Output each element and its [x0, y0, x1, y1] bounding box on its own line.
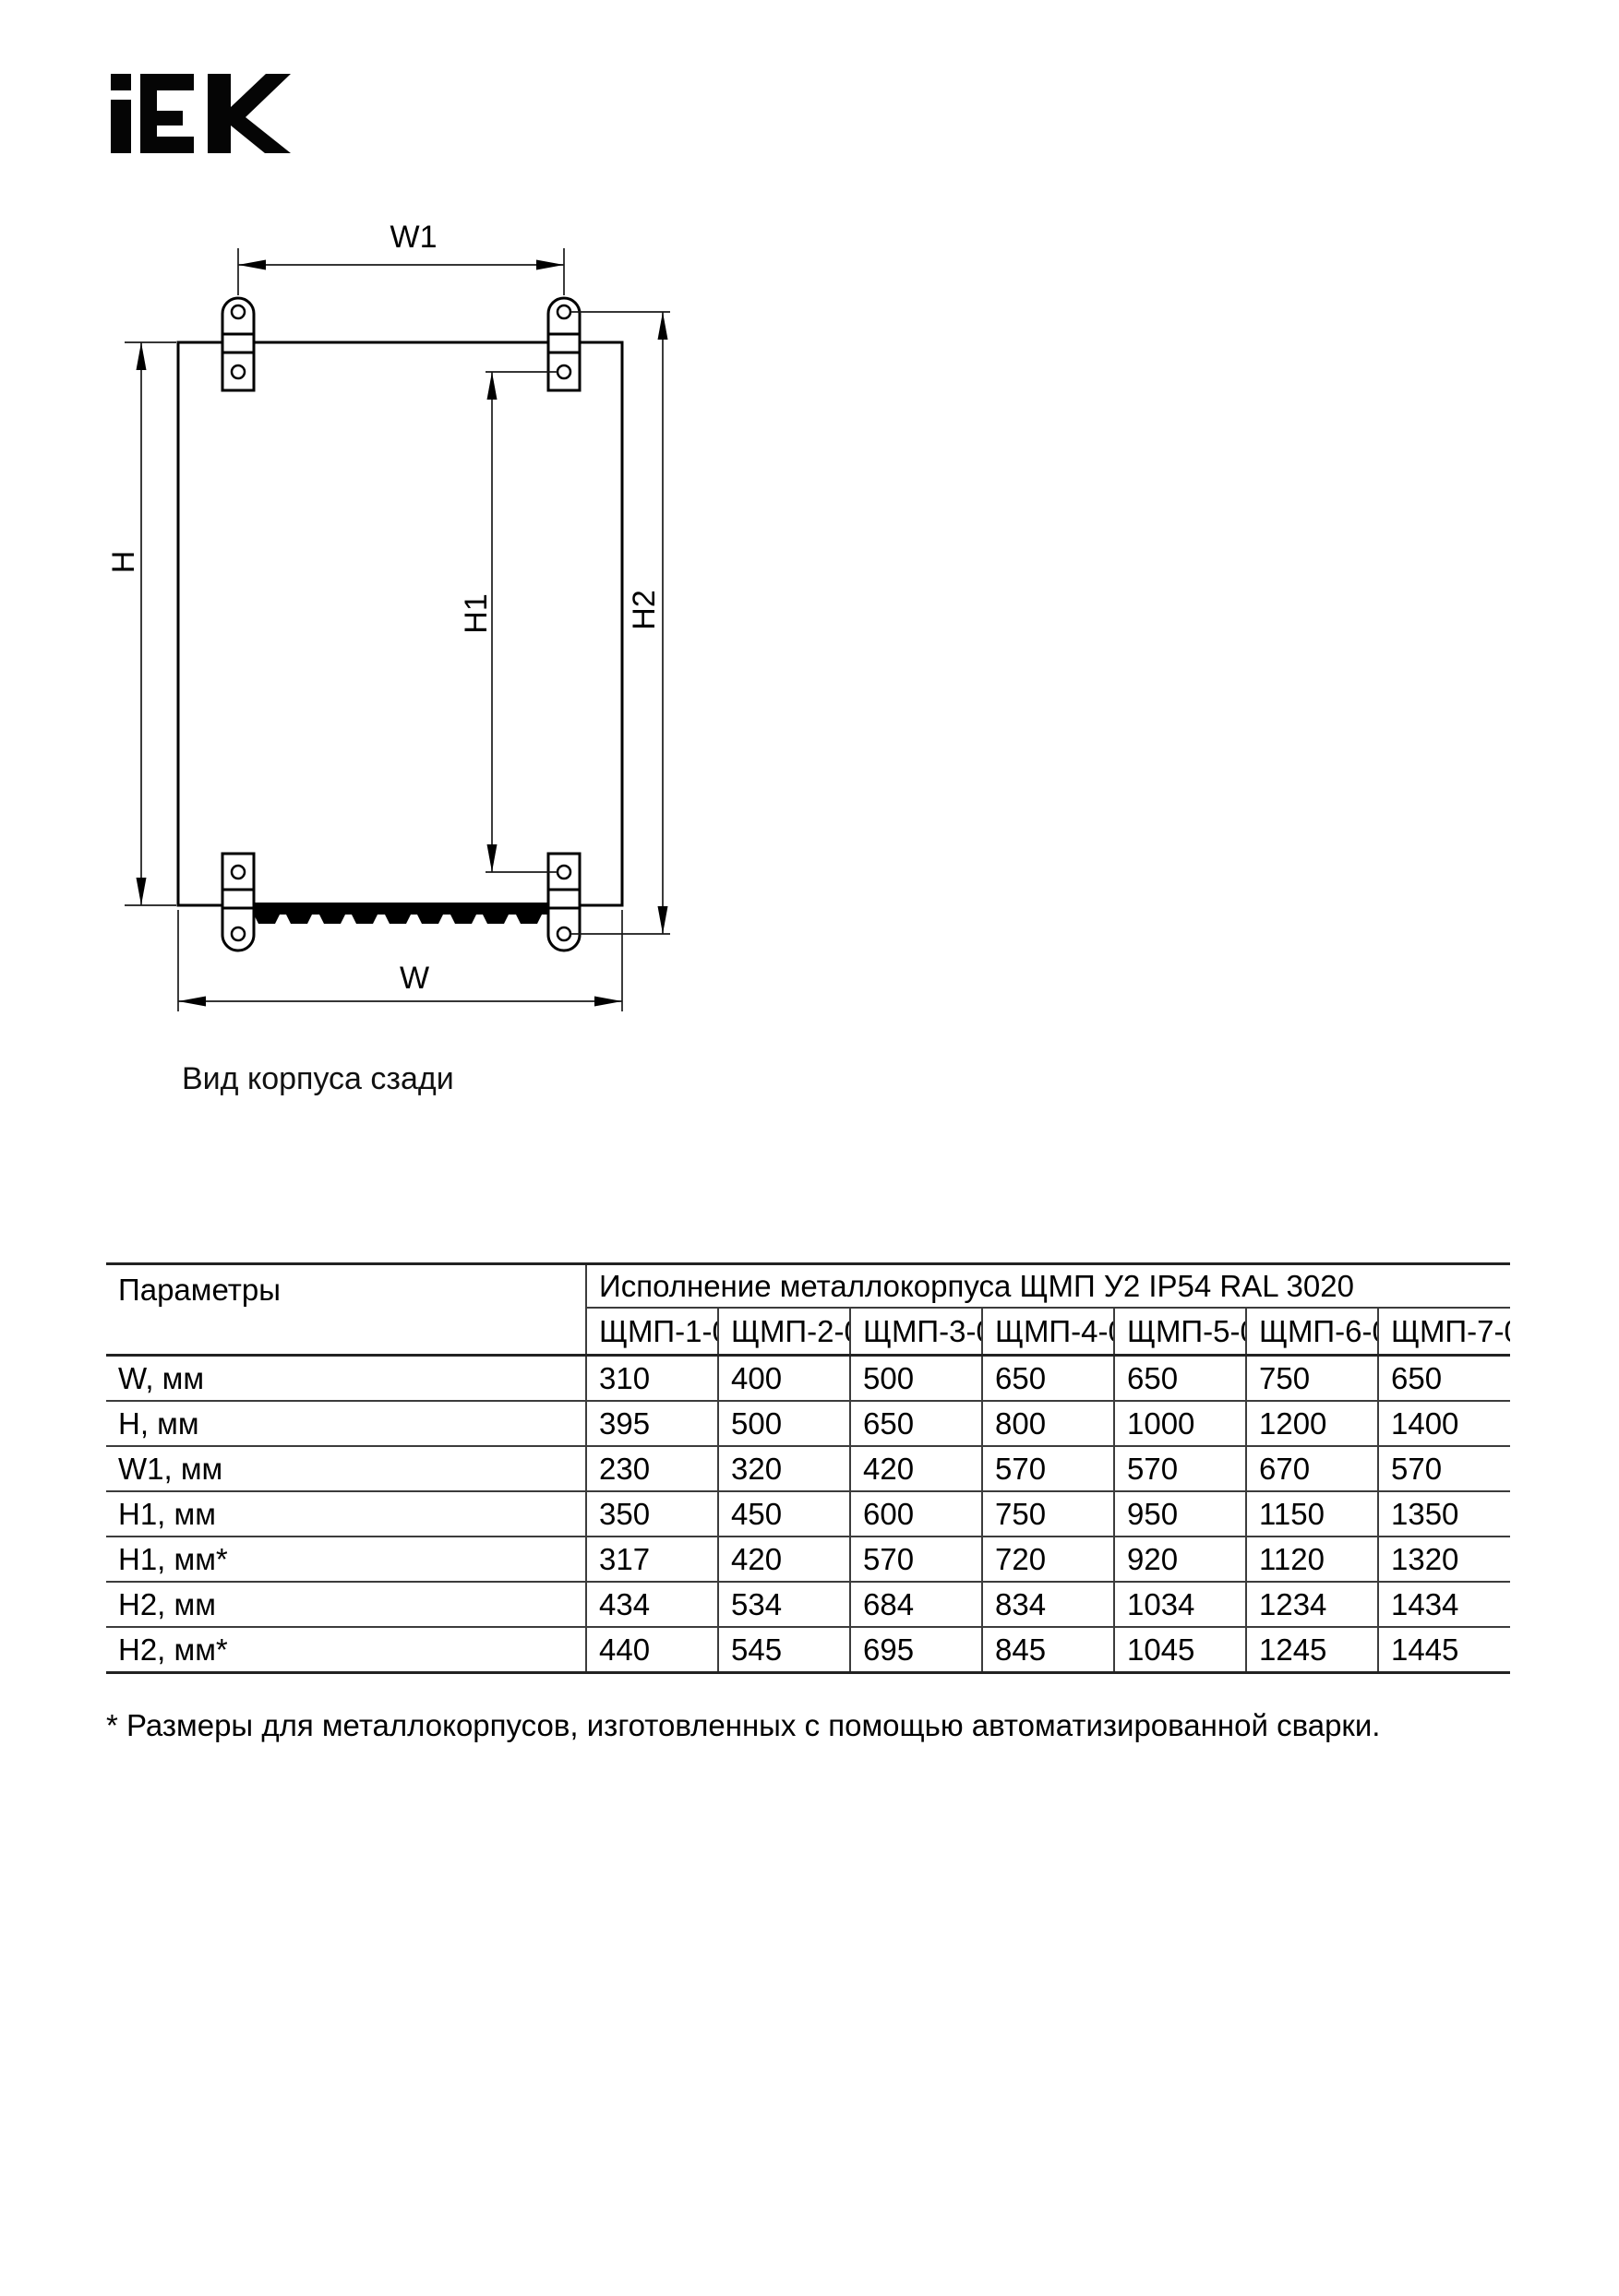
table-cell: 570: [982, 1446, 1114, 1491]
table-cell: 320: [718, 1446, 850, 1491]
table-cell: 420: [718, 1537, 850, 1582]
table-row: H2, мм 434 534 684 834 1034 1234 1434: [106, 1582, 1510, 1627]
table-cell: 440: [586, 1627, 718, 1673]
table-cell: 317: [586, 1537, 718, 1582]
table-cell: 400: [718, 1356, 850, 1402]
table-cell: 534: [718, 1582, 850, 1627]
table-cell: 350: [586, 1491, 718, 1537]
row-label: H2, мм: [106, 1582, 586, 1627]
enclosure-body: [178, 342, 622, 905]
table-cell: 650: [982, 1356, 1114, 1402]
table-cell: 670: [1246, 1446, 1378, 1491]
column-header: ЩМП-4-0: [982, 1308, 1114, 1356]
table-row: H1, мм* 317 420 570 720 920 1120 1320: [106, 1537, 1510, 1582]
datasheet-page: W1 W H H1 H2 Вид корпуса сзади Параметры…: [0, 0, 1619, 2296]
extension-lines: [125, 248, 670, 1011]
table-cell: 395: [586, 1401, 718, 1446]
dim-label-h2: H2: [627, 590, 662, 629]
table-cell: 450: [718, 1491, 850, 1537]
mounting-bracket-bottom-right: [548, 854, 580, 951]
table-cell: 650: [850, 1401, 982, 1446]
table-cell: 500: [718, 1401, 850, 1446]
row-label: H, мм: [106, 1401, 586, 1446]
table-cell: 1034: [1114, 1582, 1246, 1627]
dimension-lines: [141, 265, 663, 1001]
table-cell: 500: [850, 1356, 982, 1402]
dim-label-w1: W1: [390, 220, 438, 255]
table-cell: 1320: [1378, 1537, 1510, 1582]
table-cell: 570: [850, 1537, 982, 1582]
dimension-arrowheads: [137, 260, 668, 1007]
table-cell: 1400: [1378, 1401, 1510, 1446]
iek-logo: [111, 74, 291, 153]
table-cell: 750: [982, 1491, 1114, 1537]
dim-label-w: W: [400, 961, 429, 996]
table-cell: 1234: [1246, 1582, 1378, 1627]
table-cell: 1200: [1246, 1401, 1378, 1446]
table-cell: 1350: [1378, 1491, 1510, 1537]
table-cell: 570: [1114, 1446, 1246, 1491]
table-cell: 720: [982, 1537, 1114, 1582]
table-cell: 545: [718, 1627, 850, 1673]
table-cell: 920: [1114, 1537, 1246, 1582]
row-label: W, мм: [106, 1356, 586, 1402]
table-cell: 800: [982, 1401, 1114, 1446]
column-header: ЩМП-2-0: [718, 1308, 850, 1356]
table-row: H2, мм* 440 545 695 845 1045 1245 1445: [106, 1627, 1510, 1673]
table-cell: 434: [586, 1582, 718, 1627]
mounting-bracket-bottom-left: [222, 854, 254, 951]
table-cell: 310: [586, 1356, 718, 1402]
table-cell: 650: [1114, 1356, 1246, 1402]
table-cell: 1245: [1246, 1627, 1378, 1673]
drawing-caption: Вид корпуса сзади: [182, 1061, 454, 1097]
table-cell: 845: [982, 1627, 1114, 1673]
footnote: * Размеры для металлокорпусов, изготовле…: [106, 1708, 1380, 1743]
table-cell: 950: [1114, 1491, 1246, 1537]
row-label: H1, мм: [106, 1491, 586, 1537]
row-label: H2, мм*: [106, 1627, 586, 1673]
parameters-table: Параметры Исполнение металлокорпуса ЩМП …: [106, 1262, 1510, 1674]
table-cell: 1045: [1114, 1627, 1246, 1673]
table-cell: 834: [982, 1582, 1114, 1627]
dim-label-h: H: [106, 551, 141, 574]
column-header: ЩМП-3-0: [850, 1308, 982, 1356]
table-cell: 1000: [1114, 1401, 1246, 1446]
table-cell: 600: [850, 1491, 982, 1537]
table-cell: 1434: [1378, 1582, 1510, 1627]
column-header: ЩМП-6-0: [1246, 1308, 1378, 1356]
table-row: H1, мм 350 450 600 750 950 1150 1350: [106, 1491, 1510, 1537]
param-column-header: Параметры: [106, 1264, 586, 1356]
table-row: W1, мм 230 320 420 570 570 670 570: [106, 1446, 1510, 1491]
table-cell: 684: [850, 1582, 982, 1627]
table-cell: 570: [1378, 1446, 1510, 1491]
enclosure-rear-view-drawing: W1 W H H1 H2: [83, 208, 729, 1112]
table-cell: 1445: [1378, 1627, 1510, 1673]
table-cell: 1120: [1246, 1537, 1378, 1582]
mounting-bracket-top-left: [222, 298, 254, 390]
group-header: Исполнение металлокорпуса ЩМП У2 IP54 RA…: [586, 1264, 1510, 1309]
serrated-strip: [254, 903, 548, 924]
table-cell: 420: [850, 1446, 982, 1491]
table-cell: 1150: [1246, 1491, 1378, 1537]
row-label: H1, мм*: [106, 1537, 586, 1582]
table-row: W, мм 310 400 500 650 650 750 650: [106, 1356, 1510, 1402]
table-cell: 230: [586, 1446, 718, 1491]
dim-label-h1: H1: [459, 593, 494, 633]
table-cell: 750: [1246, 1356, 1378, 1402]
column-header: ЩМП-7-0: [1378, 1308, 1510, 1356]
row-label: W1, мм: [106, 1446, 586, 1491]
table-cell: 650: [1378, 1356, 1510, 1402]
column-header: ЩМП-1-0: [586, 1308, 718, 1356]
table-row: H, мм 395 500 650 800 1000 1200 1400: [106, 1401, 1510, 1446]
column-header: ЩМП-5-0: [1114, 1308, 1246, 1356]
table-cell: 695: [850, 1627, 982, 1673]
